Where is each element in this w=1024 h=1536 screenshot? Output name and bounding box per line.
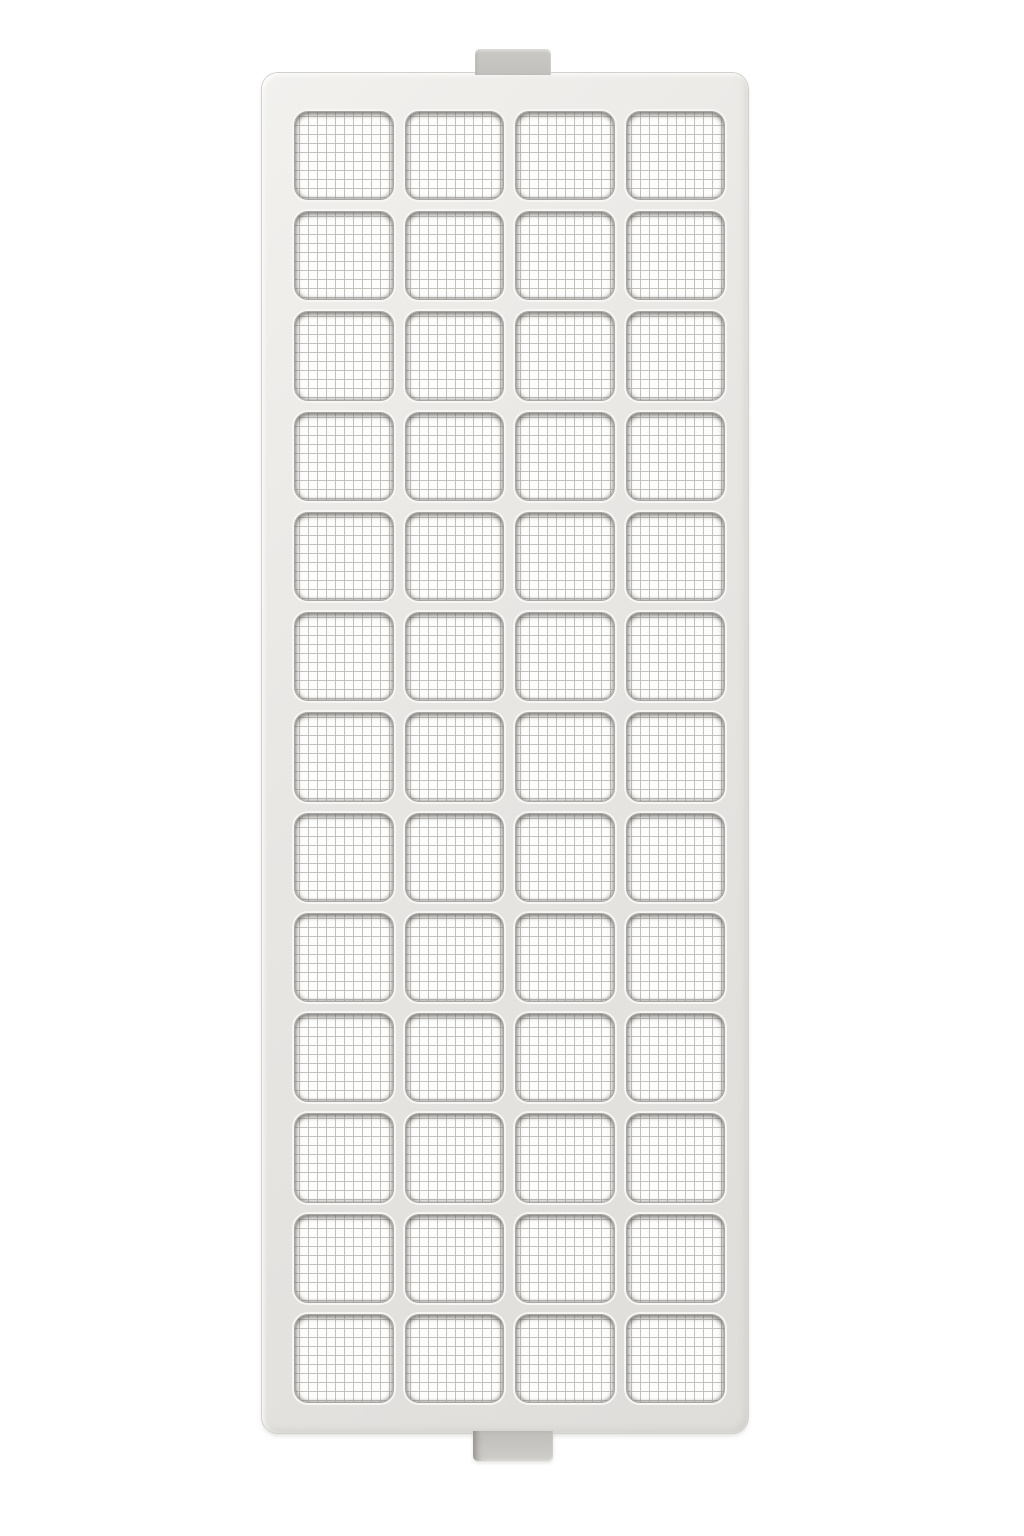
filter-cell-mesh [294, 712, 394, 801]
filter-cell-mesh [626, 1013, 726, 1102]
filter-cell-mesh [626, 512, 726, 601]
filter-cell-mesh [294, 311, 394, 400]
filter-cell-mesh [405, 1214, 505, 1303]
filter-cell-mesh [405, 1113, 505, 1202]
filter-cell-mesh [626, 1314, 726, 1403]
filter-cell-mesh [405, 612, 505, 701]
filter-cell-mesh [294, 913, 394, 1002]
filter-cell-mesh [515, 612, 615, 701]
filter-cell-mesh [294, 1314, 394, 1403]
filter-cell-mesh [515, 111, 615, 200]
filter-cell-mesh [294, 111, 394, 200]
filter-mesh-grid [294, 111, 725, 1403]
filter-cell-mesh [405, 712, 505, 801]
filter-cell-mesh [294, 412, 394, 501]
filter-cell-mesh [626, 612, 726, 701]
filter-cell-mesh [294, 612, 394, 701]
filter-cell-mesh [405, 813, 505, 902]
filter-tab-top [475, 49, 551, 75]
filter-cell-mesh [515, 1214, 615, 1303]
filter-tab-bottom [473, 1431, 553, 1461]
filter-cell-mesh [515, 412, 615, 501]
filter-cell-mesh [626, 712, 726, 801]
filter-cell-mesh [515, 1314, 615, 1403]
filter-cell-mesh [405, 1314, 505, 1403]
filter-cell-mesh [515, 1113, 615, 1202]
filter-cell-mesh [405, 512, 505, 601]
filter-cell-mesh [626, 111, 726, 200]
filter-cell-mesh [626, 913, 726, 1002]
product-photo [0, 0, 1024, 1536]
filter-cell-mesh [515, 913, 615, 1002]
filter-frame [262, 73, 748, 1433]
filter-cell-mesh [294, 211, 394, 300]
filter-cell-mesh [515, 1013, 615, 1102]
filter-cell-mesh [405, 211, 505, 300]
filter-cell-mesh [294, 512, 394, 601]
filter-cell-mesh [405, 412, 505, 501]
filter-cell-mesh [515, 512, 615, 601]
filter-cell-mesh [515, 211, 615, 300]
filter-cell-mesh [405, 311, 505, 400]
filter-cell-mesh [515, 813, 615, 902]
filter-cell-mesh [294, 1013, 394, 1102]
filter-cell-mesh [626, 412, 726, 501]
filter-cell-mesh [626, 1214, 726, 1303]
filter-cell-mesh [405, 111, 505, 200]
filter-cell-mesh [405, 913, 505, 1002]
filter-cell-mesh [405, 1013, 505, 1102]
filter-cell-mesh [294, 1113, 394, 1202]
filter-cell-mesh [626, 1113, 726, 1202]
filter-cell-mesh [515, 712, 615, 801]
filter-cell-mesh [626, 813, 726, 902]
filter-cell-mesh [294, 1214, 394, 1303]
filter-cell-mesh [626, 311, 726, 400]
filter-cell-mesh [515, 311, 615, 400]
filter-cell-mesh [294, 813, 394, 902]
filter-cell-mesh [626, 211, 726, 300]
